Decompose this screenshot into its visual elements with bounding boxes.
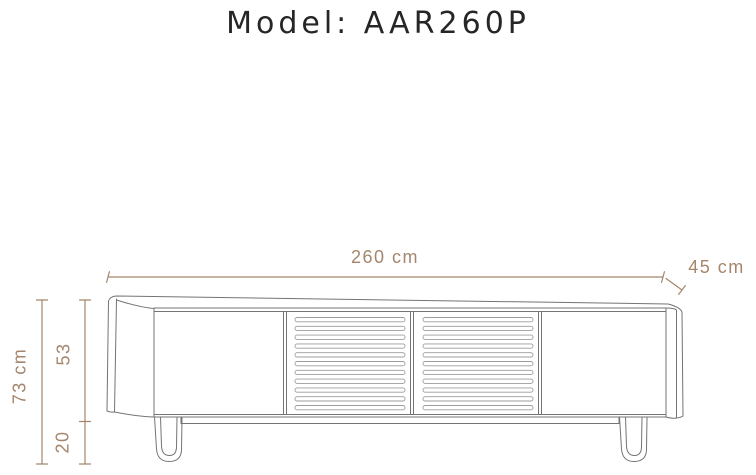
dimension-annotations: 260 cm 45 cm 73 cm 53 20 [10, 247, 745, 464]
right-leg-inner [626, 417, 643, 456]
width-dimension-label: 260 cm [351, 247, 419, 267]
left-leg-outer [155, 417, 183, 462]
slat [423, 406, 533, 410]
furniture-dimension-drawing: 260 cm 45 cm 73 cm 53 20 [0, 0, 756, 475]
right-bevel-bottom-edge [666, 416, 683, 418]
left-bevel-top-edge [117, 300, 155, 309]
slat [295, 397, 405, 401]
total-height-dimension-label: 73 cm [10, 348, 30, 405]
depth-dimension-line [666, 279, 682, 291]
total-height-dimension: 73 cm [10, 300, 48, 464]
depth-dimension-label: 45 cm [688, 257, 745, 277]
cabinet-outer-edge [107, 296, 683, 416]
segment-height-dimension: 53 20 [53, 300, 91, 464]
tv-stand-drawing [107, 296, 683, 462]
slat [295, 344, 405, 348]
slat [423, 370, 533, 374]
leg-height-dimension-label: 20 [53, 430, 73, 453]
slat [423, 344, 533, 348]
slat [423, 318, 533, 322]
slat [295, 362, 405, 366]
slat [423, 326, 533, 330]
left-leg-inner [161, 417, 178, 456]
width-dimension: 260 cm [107, 247, 665, 282]
slat [295, 335, 405, 339]
slat [423, 397, 533, 401]
slatted-door-left [295, 318, 405, 410]
slat [423, 362, 533, 366]
dimension-tick [679, 286, 686, 295]
slat [423, 379, 533, 383]
left-panel-bottom-edge [107, 411, 115, 412]
depth-dimension: 45 cm [666, 257, 745, 294]
slat [295, 318, 405, 322]
cabinet-height-dimension-label: 53 [54, 342, 74, 365]
slat [295, 326, 405, 330]
product-dimension-page: { "title": "Model: AAR260P", "colors": {… [0, 0, 756, 475]
slat [423, 335, 533, 339]
left-panel-inner-edge [115, 299, 117, 412]
left-bevel-bottom-edge [115, 412, 155, 417]
slat [295, 406, 405, 410]
slatted-door-right [423, 318, 533, 410]
slat [295, 370, 405, 374]
bottom-recess-edge [181, 417, 619, 424]
slat [423, 388, 533, 392]
right-bevel-top-edge [666, 308, 677, 418]
slat [295, 388, 405, 392]
slat [423, 353, 533, 357]
right-leg-outer [620, 417, 648, 462]
slat [295, 379, 405, 383]
slat [295, 353, 405, 357]
